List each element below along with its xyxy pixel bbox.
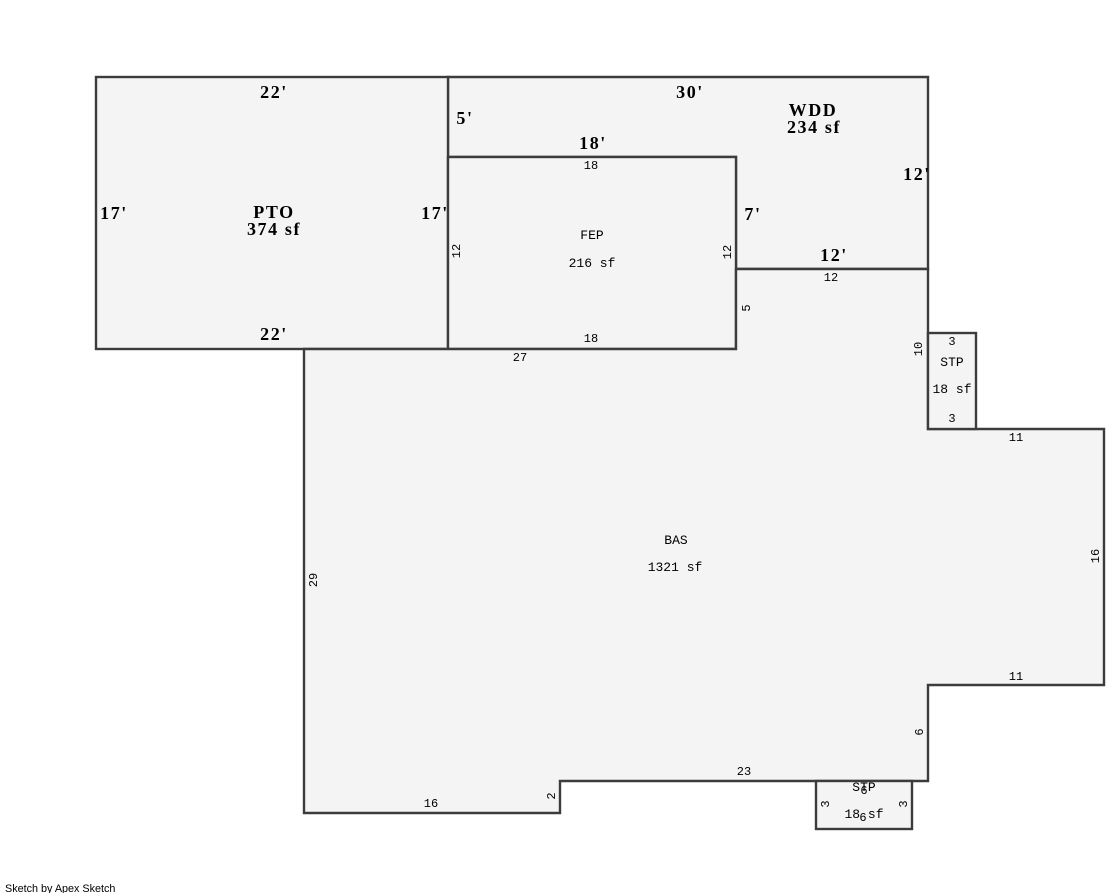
- svg-text:11: 11: [1009, 670, 1023, 684]
- svg-text:18 sf: 18 sf: [932, 382, 971, 397]
- svg-text:10: 10: [912, 342, 926, 356]
- svg-text:BAS: BAS: [664, 533, 688, 548]
- svg-text:12': 12': [903, 164, 931, 184]
- svg-text:30': 30': [676, 82, 704, 102]
- svg-text:18: 18: [584, 159, 598, 173]
- svg-text:3: 3: [948, 412, 955, 426]
- svg-text:12: 12: [450, 244, 464, 258]
- svg-text:12: 12: [824, 271, 838, 285]
- svg-text:234 sf: 234 sf: [787, 117, 841, 137]
- svg-text:18: 18: [584, 332, 598, 346]
- svg-text:FEP: FEP: [580, 228, 604, 243]
- svg-text:22': 22': [260, 82, 288, 102]
- svg-text:27: 27: [513, 351, 527, 365]
- svg-text:5: 5: [740, 304, 754, 311]
- svg-text:12: 12: [721, 245, 735, 259]
- svg-text:29: 29: [307, 573, 321, 587]
- svg-text:3: 3: [948, 335, 955, 349]
- svg-text:2: 2: [545, 792, 559, 799]
- svg-text:12': 12': [820, 245, 848, 265]
- svg-text:22': 22': [260, 324, 288, 344]
- svg-text:6: 6: [913, 728, 927, 735]
- svg-text:6: 6: [859, 811, 866, 825]
- svg-text:216 sf: 216 sf: [569, 256, 616, 271]
- svg-text:7': 7': [744, 204, 761, 224]
- svg-text:18': 18': [579, 133, 607, 153]
- svg-text:374 sf: 374 sf: [247, 219, 301, 239]
- svg-text:11: 11: [1009, 431, 1023, 445]
- svg-text:17': 17': [421, 203, 449, 223]
- svg-text:6: 6: [860, 784, 867, 798]
- svg-text:1321 sf: 1321 sf: [648, 560, 703, 575]
- svg-text:STP: STP: [940, 355, 964, 370]
- svg-text:3: 3: [819, 800, 833, 807]
- svg-text:5': 5': [456, 108, 473, 128]
- svg-text:Sketch by Apex Sketch: Sketch by Apex Sketch: [5, 883, 115, 893]
- svg-text:16: 16: [424, 797, 438, 811]
- svg-text:3: 3: [897, 800, 911, 807]
- svg-text:17': 17': [100, 203, 128, 223]
- svg-text:23: 23: [737, 765, 751, 779]
- svg-text:16: 16: [1089, 549, 1103, 563]
